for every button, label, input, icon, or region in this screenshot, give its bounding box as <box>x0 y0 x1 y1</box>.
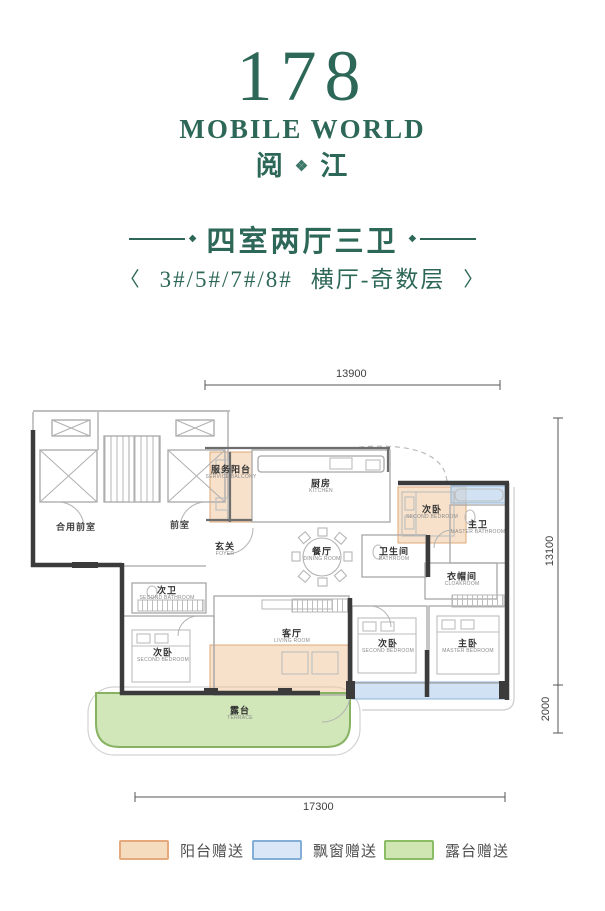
legend-label-balcony: 阳台赠送 <box>180 840 244 861</box>
dimension-right-upper: 13100 <box>544 531 556 571</box>
room-label-shared-lobby: 合用前室 <box>56 522 96 532</box>
legend-item-balcony: 阳台赠送 <box>119 840 244 860</box>
room-label-master-bathroom: 主卫MASTER BATHROOM <box>424 520 533 539</box>
room-label-second-bathroom: 次卫SECOND BATHROOM <box>112 586 222 605</box>
room-label-bathroom: 卫生间BATHROOM <box>363 547 424 566</box>
legend-swatch-balcony <box>119 840 169 860</box>
room-label-master-bedroom: 主卧MASTER BEDROOM <box>416 639 519 658</box>
legend: 阳台赠送 飘窗赠送 露台赠送 <box>0 840 605 870</box>
legend-item-terrace: 露台赠送 <box>384 840 509 860</box>
legend-swatch-baywindow <box>252 840 302 860</box>
dimension-top: 13900 <box>336 368 367 380</box>
room-label-dining: 餐厅DINING ROOM <box>285 547 359 566</box>
legend-label-baywindow: 飘窗赠送 <box>313 840 377 861</box>
room-label-foyer: 玄关FOYER <box>207 542 244 561</box>
floorplan-flyer: 178 MOBILE WORLD 阅 ❖ 江 ◆ 四室两厅三卫 ◆ 〈3#/5#… <box>0 0 605 911</box>
room-label-kitchen: 厨房KITCHEN <box>297 479 344 498</box>
room-label-service-balcony: 服务阳台SERVICE BALCONY <box>180 465 282 484</box>
room-label-living-room: 客厅LIVING ROOM <box>256 629 328 648</box>
floorplan-drawing <box>0 0 605 911</box>
room-label-lobby: 前室 <box>170 520 190 530</box>
room-label-cloakroom: 衣帽间CLOAKROOM <box>427 572 497 591</box>
legend-label-terrace: 露台赠送 <box>445 840 509 861</box>
room-label-terrace: 露台TERRACE <box>214 706 265 725</box>
legend-item-baywindow: 飘窗赠送 <box>252 840 377 860</box>
legend-swatch-terrace <box>384 840 434 860</box>
room-label-second-bedroom-west: 次卧SECOND BEDROOM <box>111 648 215 667</box>
dimension-right-lower: 2000 <box>540 691 552 727</box>
dimension-bottom: 17300 <box>303 801 334 813</box>
